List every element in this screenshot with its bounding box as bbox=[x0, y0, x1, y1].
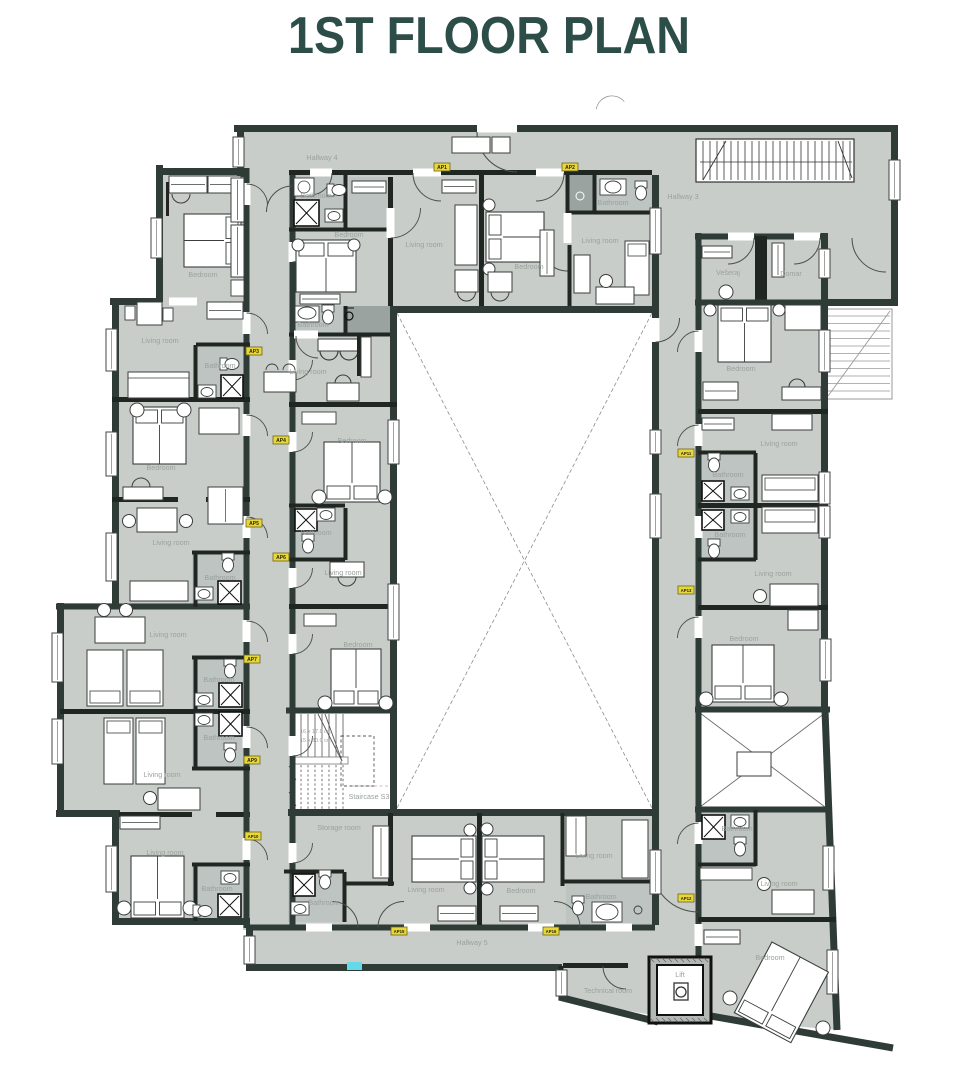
svg-text:Bathroom: Bathroom bbox=[297, 320, 328, 329]
svg-text:AP1: AP1 bbox=[437, 165, 447, 171]
svg-text:15 x 30.0 cm: 15 x 30.0 cm bbox=[300, 738, 332, 744]
svg-text:Bedroom: Bedroom bbox=[146, 463, 175, 472]
svg-text:AP13: AP13 bbox=[681, 588, 692, 593]
svg-text:Storage room: Storage room bbox=[317, 823, 361, 832]
svg-text:Bedroom: Bedroom bbox=[755, 953, 784, 962]
svg-text:Living room: Living room bbox=[143, 770, 180, 779]
svg-text:AP7: AP7 bbox=[247, 657, 257, 663]
svg-text:AP12: AP12 bbox=[681, 896, 692, 901]
svg-text:Living room: Living room bbox=[407, 885, 444, 894]
svg-text:Living room: Living room bbox=[141, 336, 178, 345]
svg-text:1ST FLOOR PLAN: 1ST FLOOR PLAN bbox=[288, 7, 690, 65]
svg-text:Hallway 4: Hallway 4 bbox=[306, 153, 337, 162]
svg-text:AP15: AP15 bbox=[394, 929, 405, 934]
svg-text:Bedroom: Bedroom bbox=[726, 364, 755, 373]
svg-text:Bedroom: Bedroom bbox=[343, 640, 372, 649]
svg-text:Living room: Living room bbox=[575, 851, 612, 860]
svg-text:AP4: AP4 bbox=[276, 438, 286, 444]
svg-text:Vešeraj: Vešeraj bbox=[716, 268, 740, 277]
svg-text:Bedroom: Bedroom bbox=[337, 436, 366, 445]
svg-text:Hallway 5: Hallway 5 bbox=[456, 938, 487, 947]
svg-text:AP10: AP10 bbox=[248, 834, 259, 839]
svg-text:Bathroom: Bathroom bbox=[203, 733, 234, 742]
svg-text:AP11: AP11 bbox=[681, 451, 692, 456]
svg-text:Bathroom: Bathroom bbox=[203, 675, 234, 684]
svg-text:Bathroom: Bathroom bbox=[300, 191, 331, 200]
svg-text:Bathroom: Bathroom bbox=[308, 898, 339, 907]
svg-text:AP6: AP6 bbox=[276, 555, 286, 561]
svg-text:Living room: Living room bbox=[152, 538, 189, 547]
svg-text:Bedroom: Bedroom bbox=[729, 634, 758, 643]
svg-text:Bathroom: Bathroom bbox=[721, 824, 752, 833]
svg-text:Living room: Living room bbox=[581, 236, 618, 245]
svg-text:AP9: AP9 bbox=[247, 758, 257, 764]
svg-text:Living room: Living room bbox=[146, 848, 183, 857]
svg-text:Hallway 3: Hallway 3 bbox=[667, 192, 698, 201]
svg-text:Bedroom: Bedroom bbox=[506, 886, 535, 895]
svg-text:AP2: AP2 bbox=[565, 165, 575, 171]
svg-text:AP16: AP16 bbox=[546, 929, 557, 934]
svg-text:Bathroom: Bathroom bbox=[714, 530, 745, 539]
svg-text:Technical room: Technical room bbox=[584, 986, 632, 995]
svg-text:Bathroom: Bathroom bbox=[300, 528, 331, 537]
svg-text:Living room: Living room bbox=[405, 240, 442, 249]
svg-text:Bathroom: Bathroom bbox=[712, 470, 743, 479]
svg-text:Bedroom: Bedroom bbox=[514, 262, 543, 271]
svg-text:Bedroom: Bedroom bbox=[188, 270, 217, 279]
svg-text:Living room: Living room bbox=[149, 630, 186, 639]
svg-text:Living room: Living room bbox=[760, 879, 797, 888]
svg-text:AP5: AP5 bbox=[249, 521, 259, 527]
svg-text:Domar: Domar bbox=[780, 269, 802, 278]
svg-text:Living room: Living room bbox=[289, 367, 326, 376]
svg-text:Bedroom: Bedroom bbox=[334, 230, 363, 239]
svg-text:Bathroom: Bathroom bbox=[204, 361, 235, 370]
svg-text:Bathroom: Bathroom bbox=[204, 573, 235, 582]
svg-text:16 x 17.8 cm: 16 x 17.8 cm bbox=[300, 729, 332, 735]
svg-text:Living room: Living room bbox=[324, 568, 361, 577]
svg-text:Lift: Lift bbox=[675, 970, 685, 979]
svg-text:AP3: AP3 bbox=[249, 349, 259, 355]
svg-text:Bathroom: Bathroom bbox=[585, 892, 616, 901]
svg-text:Staircase S3: Staircase S3 bbox=[349, 792, 390, 801]
svg-text:Bathroom: Bathroom bbox=[201, 884, 232, 893]
svg-text:Bathroom: Bathroom bbox=[597, 198, 628, 207]
svg-text:Living room: Living room bbox=[754, 569, 791, 578]
svg-text:Living room: Living room bbox=[760, 439, 797, 448]
